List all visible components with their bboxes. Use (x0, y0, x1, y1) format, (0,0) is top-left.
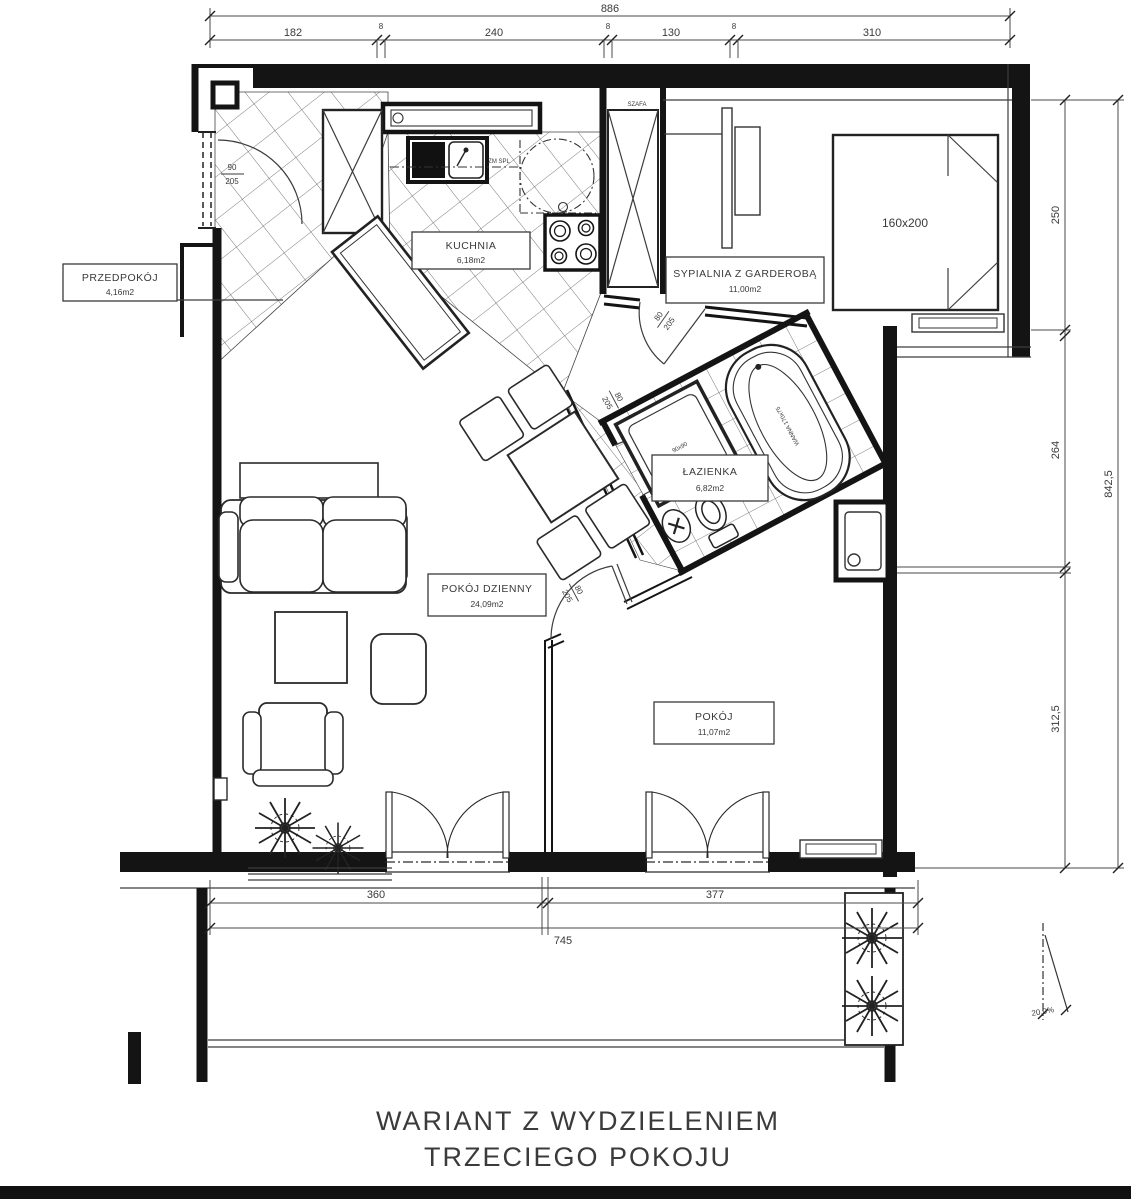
hall-wardrobe (323, 110, 382, 233)
svg-text:240: 240 (485, 27, 503, 39)
stove (545, 215, 600, 270)
bed-size-label: 160x200 (882, 216, 928, 230)
svg-text:ŁAZIENKA: ŁAZIENKA (683, 466, 738, 478)
svg-text:POKÓJ: POKÓJ (695, 710, 733, 723)
svg-text:11,07m2: 11,07m2 (698, 727, 731, 737)
room-radiator (800, 840, 882, 858)
svg-text:4,16m2: 4,16m2 (106, 287, 135, 297)
kitchen-counter (383, 104, 540, 132)
washing-machine (836, 502, 888, 580)
svg-text:8: 8 (606, 22, 611, 31)
svg-text:264: 264 (1050, 441, 1062, 459)
room-label-pokoj: POKÓJ 11,07m2 (654, 702, 774, 744)
room-label-lazienka: ŁAZIENKA 6,82m2 (652, 455, 768, 501)
bedroom-door-size-label: 80 205 (649, 305, 678, 334)
svg-text:312,5: 312,5 (1050, 705, 1062, 733)
room-label-sypialnia: SYPIALNIA Z GARDEROBĄ 11,00m2 (666, 257, 824, 303)
coffee-table (275, 612, 347, 683)
room-label-przedpokoj: PRZEDPOKÓJ 4,16m2 (63, 264, 177, 301)
svg-text:6,82m2: 6,82m2 (696, 483, 725, 493)
kitchen-sink (408, 138, 487, 182)
walk-in-closet (664, 108, 760, 248)
console-table (240, 463, 378, 498)
dim-top-total: 886 (601, 3, 619, 15)
entrance-door-width: 90 (228, 163, 237, 172)
living-room-group (214, 463, 426, 800)
armchair (243, 703, 343, 786)
svg-text:PRZEDPOKÓJ: PRZEDPOKÓJ (82, 271, 158, 284)
dim-right-total: 842,5 (1103, 470, 1115, 498)
svg-text:8: 8 (379, 22, 384, 31)
svg-text:377: 377 (706, 889, 724, 901)
wall-socket (214, 778, 227, 800)
svg-text:24,09m2: 24,09m2 (470, 599, 503, 609)
wardrobe-label: SZAFA (627, 102, 646, 108)
dimension-top: 886 182 8 240 8 130 8 310 (205, 3, 1015, 58)
svg-text:KUCHNIA: KUCHNIA (446, 240, 497, 252)
svg-text:310: 310 (863, 27, 881, 39)
svg-text:8: 8 (732, 22, 737, 31)
svg-text:POKÓJ DZIENNY: POKÓJ DZIENNY (441, 582, 532, 595)
room-label-pokoj-dzienny: POKÓJ DZIENNY 24,09m2 (428, 574, 546, 616)
room-label-kuchnia: KUCHNIA 6,18m2 (412, 232, 530, 269)
bedroom-radiator (912, 314, 1004, 332)
sofa (219, 497, 407, 593)
bedroom-door-arc (639, 302, 664, 364)
bed: 160x200 (833, 135, 998, 310)
drawing-title: WARIANT Z WYDZIELENIEM TRZECIEGO POKOJU (376, 1106, 780, 1172)
dim-bottom-total: 745 (554, 935, 572, 947)
slope-label: 20,0% (1031, 1005, 1055, 1018)
third-room-door-size-label: 80 205 (559, 579, 588, 607)
svg-text:6,18m2: 6,18m2 (457, 255, 486, 265)
indoor-plants (248, 798, 392, 880)
svg-text:130: 130 (662, 27, 680, 39)
svg-text:80: 80 (652, 310, 665, 323)
floor-plan-page: 90x90 WANNA 170x75 (0, 0, 1131, 1199)
pillar (213, 83, 237, 107)
kitchen-appliance-note: ZM SPL (488, 159, 510, 165)
balcony-group: 20,0% (120, 888, 1071, 1084)
dining-chair (536, 515, 602, 581)
bottom-bar (0, 1186, 1131, 1199)
balcony-planter (842, 893, 903, 1045)
slope-annotation: 20,0% (1031, 923, 1071, 1020)
svg-text:SYPIALNIA Z GARDEROBĄ: SYPIALNIA Z GARDEROBĄ (673, 268, 817, 280)
entrance-door-height: 205 (225, 177, 239, 186)
title-line-1: WARIANT Z WYDZIELENIEM (376, 1106, 780, 1136)
bedroom-wardrobe: SZAFA (608, 102, 658, 287)
svg-text:182: 182 (284, 27, 302, 39)
title-line-2: TRZECIEGO POKOJU (424, 1142, 732, 1172)
svg-text:360: 360 (367, 889, 385, 901)
floor-plan-canvas: 90x90 WANNA 170x75 (0, 0, 1131, 1199)
svg-text:11,00m2: 11,00m2 (729, 284, 762, 294)
svg-text:250: 250 (1050, 206, 1062, 224)
pouf (371, 634, 426, 704)
